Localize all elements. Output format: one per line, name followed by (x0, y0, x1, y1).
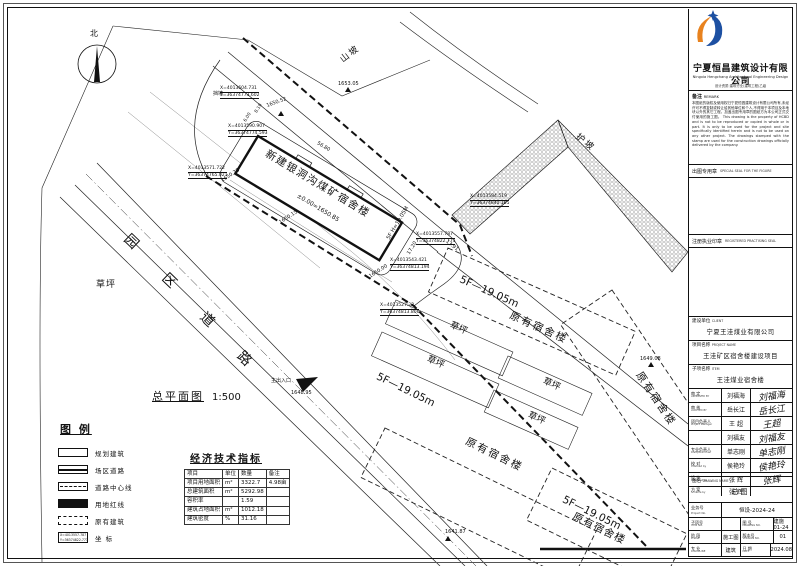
item-name-value: 王洼煤业宿舍楼 (692, 372, 789, 387)
remark-label-en: REMARK (704, 95, 719, 99)
econ-row: 项目用地面积m²3322.74.98亩 (185, 479, 290, 488)
drawing-sheet: 北山坡1653.05挡墙护坡园区道路草坪新建银洞沟煤矿宿舍楼±0.00=1650… (0, 0, 800, 566)
company-name: 宁夏恒昌建筑设计有限公司 (689, 61, 792, 75)
econ-header: 项目 (185, 470, 223, 479)
econ-header: 单位 (223, 470, 239, 479)
econ-cell: 5292.98 (239, 488, 267, 497)
plan-label: 图 例 (60, 424, 92, 435)
legend-label: 道路中心线 (95, 482, 133, 492)
coordinate-callout: X=4013527.22Y=36374813.806 (380, 303, 419, 316)
plan-label: 经济技术指标 (190, 455, 262, 465)
legend-label: 坐 标 (95, 533, 113, 543)
project-no-field: 业务号 Project No. 恒设-2024-24 (689, 503, 792, 518)
econ-cell: m² (223, 506, 239, 515)
legend-item: 场区道路 (58, 461, 133, 478)
coordinate-callout: X=4013590.907Y=36374774.593 (228, 124, 267, 137)
signer-name: 侯艳玲 (722, 459, 751, 472)
legend: 规划建筑场区道路道路中心线用地红线原有建筑X=4013557.787Y=3637… (58, 444, 133, 546)
econ-cell (266, 488, 289, 497)
econ-cell: 4.98亩 (266, 479, 289, 488)
legend-item: 原有建筑 (58, 512, 133, 529)
practising-seal-area (689, 248, 792, 317)
legend-symbol-coord: X=4013557.787Y=36374822.773 (58, 532, 88, 543)
signature-row: 项目负责人Project Manager王 超王超 (689, 417, 792, 431)
info-cell: 日 期DATE2024.08 (741, 544, 793, 557)
econ-row: 总建筑面积m²5292.98 (185, 488, 290, 497)
econ-cell: 建筑占地面积 (185, 506, 223, 515)
client-field: 建设单位 CLIENT 宁夏王洼煤业有限公司 (689, 317, 792, 341)
plan-label: 1653.05 (338, 82, 359, 87)
coordinate-callout: X=4013543.421Y=36374813.194 (390, 258, 429, 271)
coordinate-callout: X=4013604.731Y=36374773.602 (220, 86, 259, 99)
econ-cell: 1.59 (239, 497, 267, 506)
item-name-field: 子项名称 ITEM 王洼煤业宿舍楼 (689, 365, 792, 389)
figure-seal-header: 出图专用章 SPECIAL SEAL FOR THE FIGURE (689, 165, 792, 178)
signer-name: 岳长江 (722, 403, 751, 416)
north-arrow-icon (78, 45, 116, 83)
econ-cell (266, 506, 289, 515)
legend-label: 用地红线 (95, 499, 125, 509)
info-cell: 版本号VERSION NO.01 (741, 531, 793, 544)
legend-label: 场区道路 (95, 465, 125, 475)
coordinate-callout: X=4013571.722Y=36374765.021 (188, 166, 227, 179)
signer-name: 刘福海 (722, 389, 751, 402)
remark-label: 备注 (692, 94, 702, 100)
signer-role: 审 定APPROVED BY (689, 389, 722, 402)
econ-cell: 总建筑面积 (185, 488, 223, 497)
legend-item: 用地红线 (58, 495, 133, 512)
coordinate-callout: X=4013557.787Y=36374822.773 (416, 232, 455, 245)
econ-cell (266, 515, 289, 524)
remark-text-en: This drawing is the property of HCBD and… (692, 115, 789, 147)
legend-label: 原有建筑 (95, 516, 125, 526)
econ-cell: m² (223, 479, 239, 488)
plan-label: 1648.95 (291, 391, 312, 396)
client-value: 宁夏王洼煤业有限公司 (692, 324, 789, 339)
legend-symbol-redline (58, 499, 88, 508)
info-cell: 图 号DRAWING NO.建施01-24 (741, 518, 793, 531)
signature-row: 刘福友刘福友 (689, 431, 792, 445)
econ-row: 容积率1.59 (185, 497, 290, 506)
info-cell: 阶 段PHASE施工图 (689, 531, 741, 544)
coordinate-callout: X=4013584.519Y=36374840.105 (470, 194, 509, 207)
econ-cell: % (223, 515, 239, 524)
econ-row: 建筑密度%31.16 (185, 515, 290, 524)
figure-seal-area (689, 178, 792, 235)
contour-lines (128, 92, 455, 360)
company-qualification: 设计资质:建筑行业(建筑工程)乙级 (689, 83, 792, 91)
economic-indicators-table: 项目单位数量备注项目用地面积m²3322.74.98亩总建筑面积m²5292.9… (184, 469, 290, 525)
legend-item: X=4013557.787Y=36374822.773坐 标 (58, 529, 133, 546)
signature-row: 校 对Checked by侯艳玲侯艳玲 (689, 459, 792, 473)
econ-cell (266, 497, 289, 506)
econ-cell: 1012.18 (239, 506, 267, 515)
legend-item: 规划建筑 (58, 444, 133, 461)
title-block: 宁夏恒昌建筑设计有限公司 Ningxia Hengchang Architect… (688, 9, 792, 557)
signature-row: 专业负责人Discipline Chief单志刚单志刚 (689, 445, 792, 459)
project-name-field: 项目名称 PROJECT NAME 王洼矿区宿舍楼建设项目 (689, 341, 792, 365)
signer-role: 专业负责人Discipline Chief (689, 445, 722, 458)
plan-label: 总平面图 (152, 391, 204, 402)
company-logo-icon (689, 9, 792, 61)
econ-cell (223, 497, 239, 506)
signer-name: 王 超 (722, 417, 751, 430)
legend-symbol-planned (58, 448, 88, 457)
econ-cell: 3322.7 (239, 479, 267, 488)
econ-cell: m² (223, 488, 239, 497)
legend-item: 道路中心线 (58, 478, 133, 495)
legend-symbol-siteroad (58, 465, 88, 474)
plan-label: 1641.87 (445, 530, 466, 535)
signer-name: 刘福友 (722, 431, 751, 444)
signer-role: 项目负责人Project Manager (689, 417, 722, 430)
spot-elevation-markers (278, 87, 654, 541)
legend-label: 规划建筑 (95, 448, 125, 458)
legend-symbol-existing (58, 516, 88, 525)
signature-grid: 审 定APPROVED BY刘福海刘福海审 核AUDITED BY岳长江岳长江项… (689, 389, 792, 477)
plan-label: 北 (90, 30, 98, 38)
plan-label: 草坪 (96, 281, 116, 290)
plan-label: 主出入口 (271, 379, 291, 384)
plan-label: 1649.08 (640, 357, 661, 362)
econ-header: 数量 (239, 470, 267, 479)
company-name-en: Ningxia Hengchang Architectural Engineer… (689, 75, 792, 83)
project-no-value: 恒设-2024-24 (722, 503, 792, 517)
signer-role (689, 431, 722, 444)
practising-seal-header: 注册执业印章 REGISTERED PRACTISING SEAL (689, 235, 792, 248)
info-cell: 子项号ITEM NO. (689, 518, 741, 531)
econ-cell: 31.16 (239, 515, 267, 524)
signature-row: 审 核AUDITED BY岳长江岳长江 (689, 403, 792, 417)
project-name-value: 王洼矿区宿舍楼建设项目 (692, 348, 789, 363)
econ-row: 建筑占地面积m²1012.18 (185, 506, 290, 515)
remark-section: 备注 REMARK 本图纸的版权及使用权归宁夏恒昌建筑设计有限公司所有,未经许可… (689, 91, 792, 165)
signer-name: 单志刚 (722, 445, 751, 458)
econ-header: 备注 (266, 470, 289, 479)
econ-cell: 建筑密度 (185, 515, 223, 524)
info-cell: 专 业DISCIPLINE建筑 (689, 544, 741, 557)
existing-buildings (361, 248, 688, 566)
legend-symbol-centerline (58, 482, 88, 491)
drawing-info-grid: 子项号ITEM NO.图 号DRAWING NO.建施01-24阶 段PHASE… (689, 518, 792, 557)
econ-cell: 容积率 (185, 497, 223, 506)
econ-cell: 项目用地面积 (185, 479, 223, 488)
plan-label: 1:500 (212, 393, 241, 403)
signer-role: 校 对Checked by (689, 459, 722, 472)
signature-row: 审 定APPROVED BY刘福海刘福海 (689, 389, 792, 403)
signer-role: 审 核AUDITED BY (689, 403, 722, 416)
